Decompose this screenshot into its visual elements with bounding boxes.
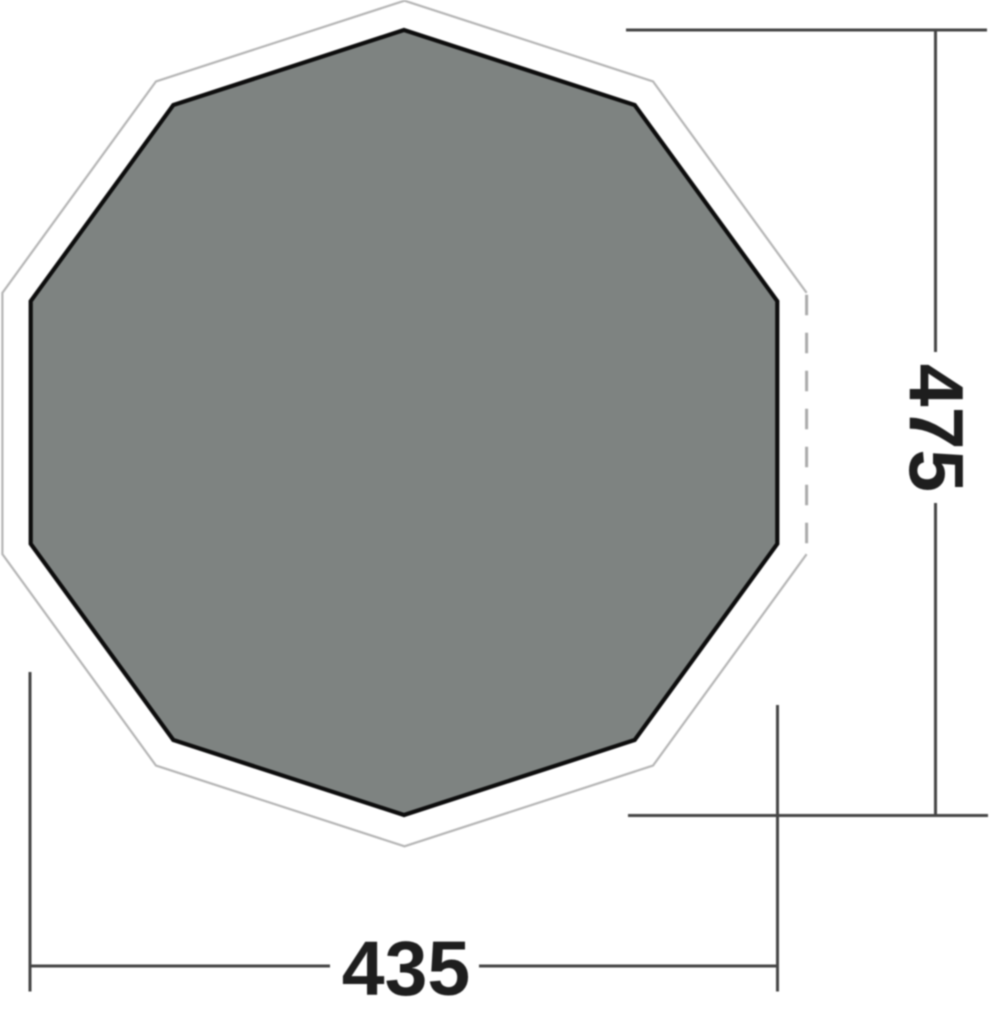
svg-text:435: 435 <box>342 926 470 1010</box>
svg-text:475: 475 <box>893 364 979 492</box>
